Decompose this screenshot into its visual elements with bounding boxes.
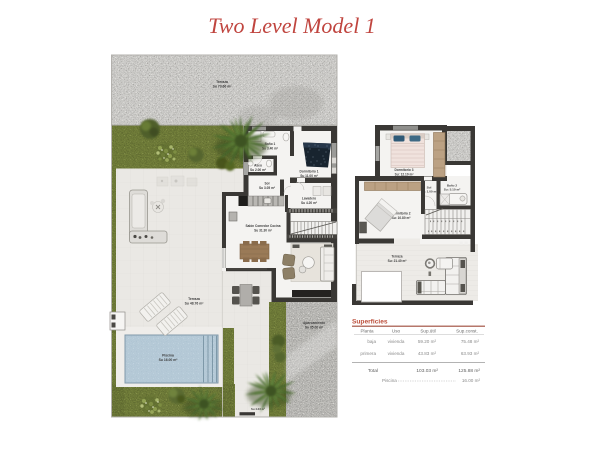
svg-text:63.93 m²: 63.93 m² [461, 351, 480, 356]
svg-text:Su: 5.10 m²: Su: 5.10 m² [444, 188, 461, 192]
svg-text:Aparcamiento: Aparcamiento [303, 321, 325, 325]
svg-text:Su: 10.80 m²: Su: 10.80 m² [392, 216, 411, 220]
svg-text:Su 31.30 m²: Su 31.30 m² [254, 228, 272, 232]
svg-text:59.20 m²: 59.20 m² [418, 339, 437, 344]
svg-text:Uso: Uso [392, 329, 401, 334]
svg-text:43.83 m²: 43.83 m² [418, 351, 437, 356]
svg-text:vivienda: vivienda [388, 351, 405, 356]
svg-text:Terraza: Terraza [391, 255, 402, 259]
svg-text:Planta: Planta [360, 329, 373, 334]
svg-text:vivienda: vivienda [388, 339, 405, 344]
svg-text:Su: 12.10 m²: Su: 12.10 m² [395, 172, 414, 176]
svg-text:Su: 21.40 m²: Su: 21.40 m² [388, 259, 407, 263]
svg-text:Sup.útil: Sup.útil [420, 329, 435, 334]
svg-text:Su 35.00 m²: Su 35.00 m² [305, 326, 324, 330]
svg-text:16.00 m²: 16.00 m² [462, 378, 481, 383]
svg-text:Su 79.66 m²: Su 79.66 m² [213, 85, 233, 89]
svg-text:Su 4.20 m²: Su 4.20 m² [301, 201, 317, 205]
svg-text:Piscina: Piscina [382, 378, 397, 383]
svg-text:125.88 m²: 125.88 m² [458, 368, 480, 374]
svg-text:Su 48.76 m²: Su 48.76 m² [185, 302, 205, 306]
svg-text:Su 3.05 m²: Su 3.05 m² [259, 186, 275, 190]
svg-text:baja: baja [367, 339, 376, 344]
svg-text:Total: Total [368, 368, 378, 374]
svg-text:Dormitorio 3: Dormitorio 3 [395, 168, 414, 172]
svg-text:Piscina: Piscina [162, 354, 174, 358]
svg-text:103.03 m²: 103.03 m² [416, 368, 438, 374]
svg-text:Superficies: Superficies [352, 319, 388, 326]
svg-text:primera: primera [360, 351, 376, 356]
svg-text:Terraza: Terraza [188, 297, 200, 301]
svg-text:Su 16.00 m²: Su 16.00 m² [159, 358, 179, 362]
svg-text:75.48 m²: 75.48 m² [461, 339, 480, 344]
svg-text:Two Level Model 1: Two Level Model 1 [208, 13, 376, 38]
svg-text:Su 11.00 m²: Su 11.00 m² [300, 174, 318, 178]
svg-text:Salón Comedor Cocina: Salón Comedor Cocina [245, 224, 280, 228]
svg-text:Terraza: Terraza [216, 80, 228, 84]
svg-text:Su: 1.00 m²: Su: 1.00 m² [421, 190, 438, 194]
svg-text:Su 2.00 m²: Su 2.00 m² [250, 168, 266, 172]
svg-text:Sup.const.: Sup.const. [456, 329, 478, 334]
